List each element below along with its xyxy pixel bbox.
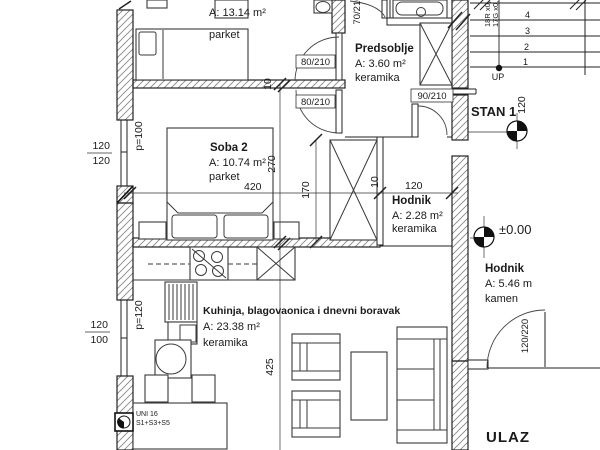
door-label-80-210-b: 80/210 bbox=[301, 97, 330, 108]
armchair-1 bbox=[292, 334, 340, 380]
door-soba2: 80/210 bbox=[296, 90, 342, 133]
staircase: UP 4 3 2 1 18R x0, 17G x0, bbox=[470, 0, 600, 82]
stair-num-3: 3 bbox=[525, 26, 530, 36]
wardrobe bbox=[330, 140, 377, 240]
sink bbox=[155, 340, 191, 378]
nightstand-right bbox=[274, 222, 299, 239]
stair-num-4: 4 bbox=[525, 10, 530, 20]
stair-num-1: 1 bbox=[523, 57, 528, 67]
wall-predsoblje-left bbox=[332, 0, 345, 33]
door-label-70-210: 70/210 bbox=[352, 0, 363, 25]
dim-parapet-100: p=100 bbox=[133, 121, 145, 151]
wall-right-2 bbox=[452, 156, 468, 361]
stair-going-note: 17G x0, bbox=[491, 1, 500, 27]
floor-plan-page: 80/210 80/210 90/210 70/210 120/220 bbox=[0, 0, 600, 450]
stair-start-dot bbox=[496, 65, 502, 71]
door-label-120-220: 120/220 bbox=[520, 319, 531, 353]
stove bbox=[190, 247, 228, 280]
door-entry: 120/220 bbox=[487, 310, 545, 368]
predsoblje-label: Predsoblje A: 3.60 m² keramika bbox=[355, 43, 414, 84]
window-upper bbox=[117, 120, 133, 186]
window-lower bbox=[117, 300, 133, 376]
dim-win1-a: 120 bbox=[92, 140, 110, 152]
dim-270: 270 bbox=[266, 155, 278, 173]
hodnik-small-label: Hodnik A: 2.28 m² keramika bbox=[392, 195, 443, 235]
wall-left-upper bbox=[117, 10, 133, 120]
hodnik-small-area: A: 2.28 m² bbox=[392, 210, 443, 222]
dim-120-stair: 120 bbox=[516, 96, 528, 114]
wall-niche bbox=[452, 89, 476, 94]
dim-420: 420 bbox=[244, 181, 262, 193]
vent-unit-symbol bbox=[115, 413, 133, 431]
level-label: ±0.00 bbox=[499, 222, 531, 237]
door-room1: 80/210 bbox=[295, 33, 342, 81]
hodnik-small-floor: keramika bbox=[392, 223, 438, 235]
kitchen-shaft bbox=[257, 247, 295, 280]
vent-unit-line1: UNI 16 bbox=[136, 411, 158, 418]
dim-win1-b: 120 bbox=[92, 155, 110, 167]
nightstand-top bbox=[147, 0, 167, 8]
stan1-label: STAN 1 bbox=[471, 104, 516, 119]
entry-doorpost bbox=[468, 360, 488, 369]
hodnik-entry-name: Hodnik bbox=[485, 263, 525, 275]
stair-num-2: 2 bbox=[524, 42, 529, 52]
soba2-area: A: 10.74 m² bbox=[209, 157, 266, 169]
living-area: A: 23.38 m² bbox=[203, 321, 260, 333]
door-label-90-210: 90/210 bbox=[417, 91, 446, 102]
dining-chair-1 bbox=[145, 375, 168, 402]
dim-10-b: 10 bbox=[262, 78, 274, 90]
fridge-unit bbox=[165, 282, 197, 322]
door-label-80-210-a: 80/210 bbox=[301, 57, 330, 68]
room1-area: A: 13.14 m² bbox=[209, 7, 266, 19]
predsoblje-name: Predsoblje bbox=[355, 43, 414, 55]
dim-win2-b: 100 bbox=[90, 334, 108, 346]
floor-plan-canvas: 80/210 80/210 90/210 70/210 120/220 bbox=[0, 0, 600, 450]
coffee-table bbox=[351, 352, 387, 420]
ulaz-label: ULAZ bbox=[486, 429, 530, 446]
wall-right-3 bbox=[452, 361, 468, 450]
dim-120-hodnik: 120 bbox=[405, 180, 423, 192]
hodnik-small-name: Hodnik bbox=[392, 195, 432, 207]
door-bathroom: 70/210 bbox=[350, 0, 387, 25]
door-hodnik: 90/210 bbox=[411, 89, 453, 137]
soba2-name: Soba 2 bbox=[210, 142, 248, 154]
vent-unit-line2: S1+S3+S5 bbox=[136, 420, 170, 427]
predsoblje-area: A: 3.60 m² bbox=[355, 58, 406, 70]
room1-label: A: 13.14 m² parket bbox=[209, 7, 266, 41]
hodnik-entry-area: A: 5.46 m bbox=[485, 278, 532, 290]
toilet bbox=[314, 0, 332, 13]
dim-parapet-120: p=120 bbox=[133, 300, 145, 330]
room1-floor: parket bbox=[209, 29, 240, 41]
shaft-box bbox=[420, 23, 452, 85]
predsoblje-floor: keramika bbox=[355, 72, 401, 84]
dim-10-a: 10 bbox=[369, 176, 381, 188]
nightstand-left bbox=[139, 222, 166, 239]
living-name: Kuhinja, blagovaonica i dnevni boravak bbox=[203, 305, 400, 317]
bathtub bbox=[393, 0, 447, 18]
wall-soba2-top bbox=[133, 80, 345, 88]
hodnik-entry-label: Hodnik A: 5.46 m kamen bbox=[485, 263, 532, 305]
level-marker: ±0.00 bbox=[470, 216, 531, 258]
dim-170: 170 bbox=[300, 181, 312, 199]
armchair-2 bbox=[292, 391, 340, 437]
dim-425: 425 bbox=[264, 358, 276, 376]
wall-right-1 bbox=[452, 95, 468, 140]
stair-up-label: UP bbox=[492, 72, 505, 82]
wall-left-middle bbox=[117, 203, 133, 300]
soba2-floor: parket bbox=[209, 171, 240, 183]
living-floor: keramika bbox=[203, 337, 249, 349]
dining-chair-2 bbox=[192, 375, 215, 402]
sofa bbox=[397, 327, 447, 443]
dim-win2-a: 120 bbox=[90, 319, 108, 331]
hodnik-entry-floor: kamen bbox=[485, 293, 518, 305]
